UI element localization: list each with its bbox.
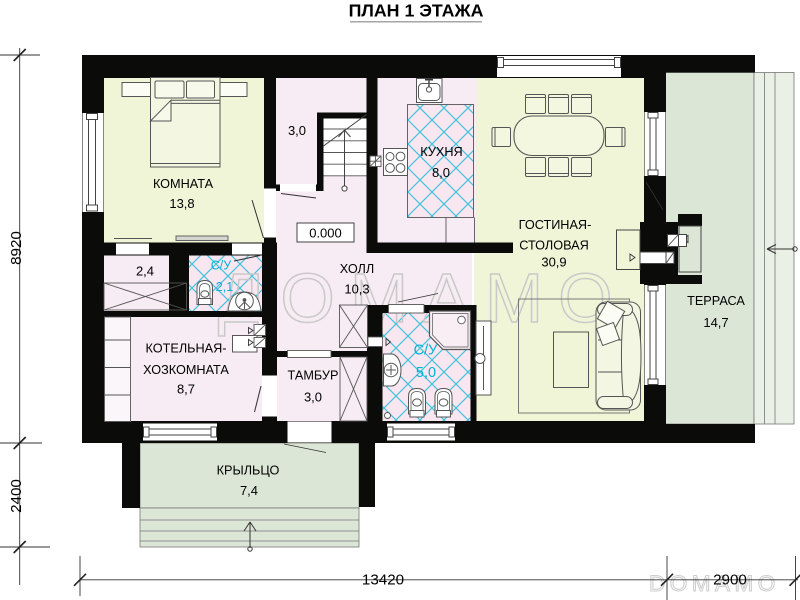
svg-text:10,3: 10,3	[344, 282, 369, 297]
svg-text:ПЛАН 1 ЭТАЖА: ПЛАН 1 ЭТАЖА	[349, 1, 484, 21]
svg-text:30,9: 30,9	[541, 255, 566, 270]
svg-text:2,4: 2,4	[136, 264, 154, 279]
svg-text:С/У: С/У	[414, 343, 439, 359]
svg-text:2,1: 2,1	[216, 280, 233, 294]
svg-text:3,0: 3,0	[304, 390, 322, 405]
svg-text:КОТЕЛЬНАЯ-: КОТЕЛЬНАЯ-	[146, 342, 227, 356]
svg-text:13420: 13420	[362, 572, 404, 589]
svg-text:7,4: 7,4	[240, 483, 258, 498]
svg-text:3,0: 3,0	[288, 123, 306, 138]
svg-text:С/У: С/У	[211, 259, 232, 273]
svg-text:2400: 2400	[8, 479, 25, 513]
svg-text:КРЫЛЬЦО: КРЫЛЬЦО	[217, 464, 280, 478]
svg-text:2900: 2900	[713, 572, 747, 589]
svg-text:СТОЛОВАЯ: СТОЛОВАЯ	[519, 239, 589, 253]
svg-text:КУХНЯ: КУХНЯ	[420, 145, 462, 159]
svg-text:8920: 8920	[8, 231, 25, 265]
svg-text:ХОЗКОМНАТА: ХОЗКОМНАТА	[143, 363, 229, 377]
svg-text:8,0: 8,0	[432, 165, 450, 180]
svg-text:КОМНАТА: КОМНАТА	[153, 177, 214, 191]
svg-text:8,7: 8,7	[177, 382, 195, 397]
svg-text:ГОСТИНАЯ-: ГОСТИНАЯ-	[519, 218, 592, 232]
svg-text:5,0: 5,0	[416, 365, 436, 381]
svg-text:0.000: 0.000	[309, 226, 342, 241]
svg-text:14,7: 14,7	[703, 315, 728, 330]
svg-text:ДОМАМО: ДОМАМО	[218, 259, 628, 337]
svg-text:ХОЛЛ: ХОЛЛ	[340, 262, 374, 276]
svg-text:ТЕРРАСА: ТЕРРАСА	[687, 294, 745, 308]
svg-text:13,8: 13,8	[169, 196, 194, 211]
svg-text:ТАМБУР: ТАМБУР	[288, 369, 339, 383]
